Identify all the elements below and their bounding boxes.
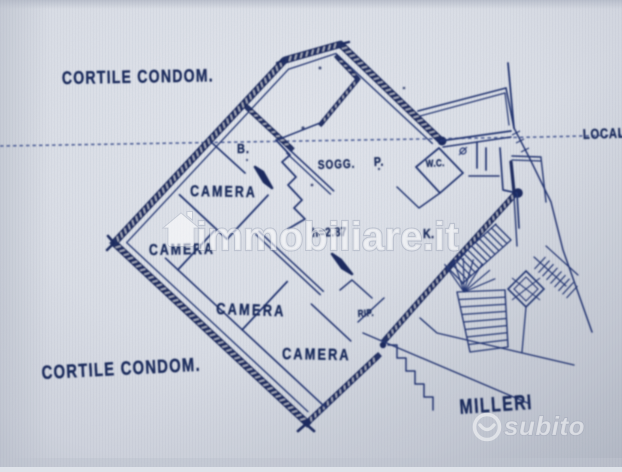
- svg-text:CAMERA: CAMERA: [282, 346, 351, 365]
- svg-text:RIP.: RIP.: [357, 307, 374, 319]
- svg-text:B.: B.: [237, 141, 250, 156]
- svg-text:CORTILE CONDOM.: CORTILE CONDOM.: [62, 66, 214, 89]
- svg-text:CAMERA: CAMERA: [190, 182, 257, 201]
- svg-text:immobiliare.it: immobiliare.it: [196, 215, 459, 259]
- svg-text:P.: P.: [374, 155, 385, 169]
- svg-text:SOGG.: SOGG.: [318, 158, 356, 173]
- svg-text:W.C.: W.C.: [426, 157, 445, 169]
- svg-text:CAMERA: CAMERA: [216, 301, 286, 321]
- svg-text:subito: subito: [504, 411, 585, 441]
- svg-text:LOCAL: LOCAL: [583, 125, 622, 142]
